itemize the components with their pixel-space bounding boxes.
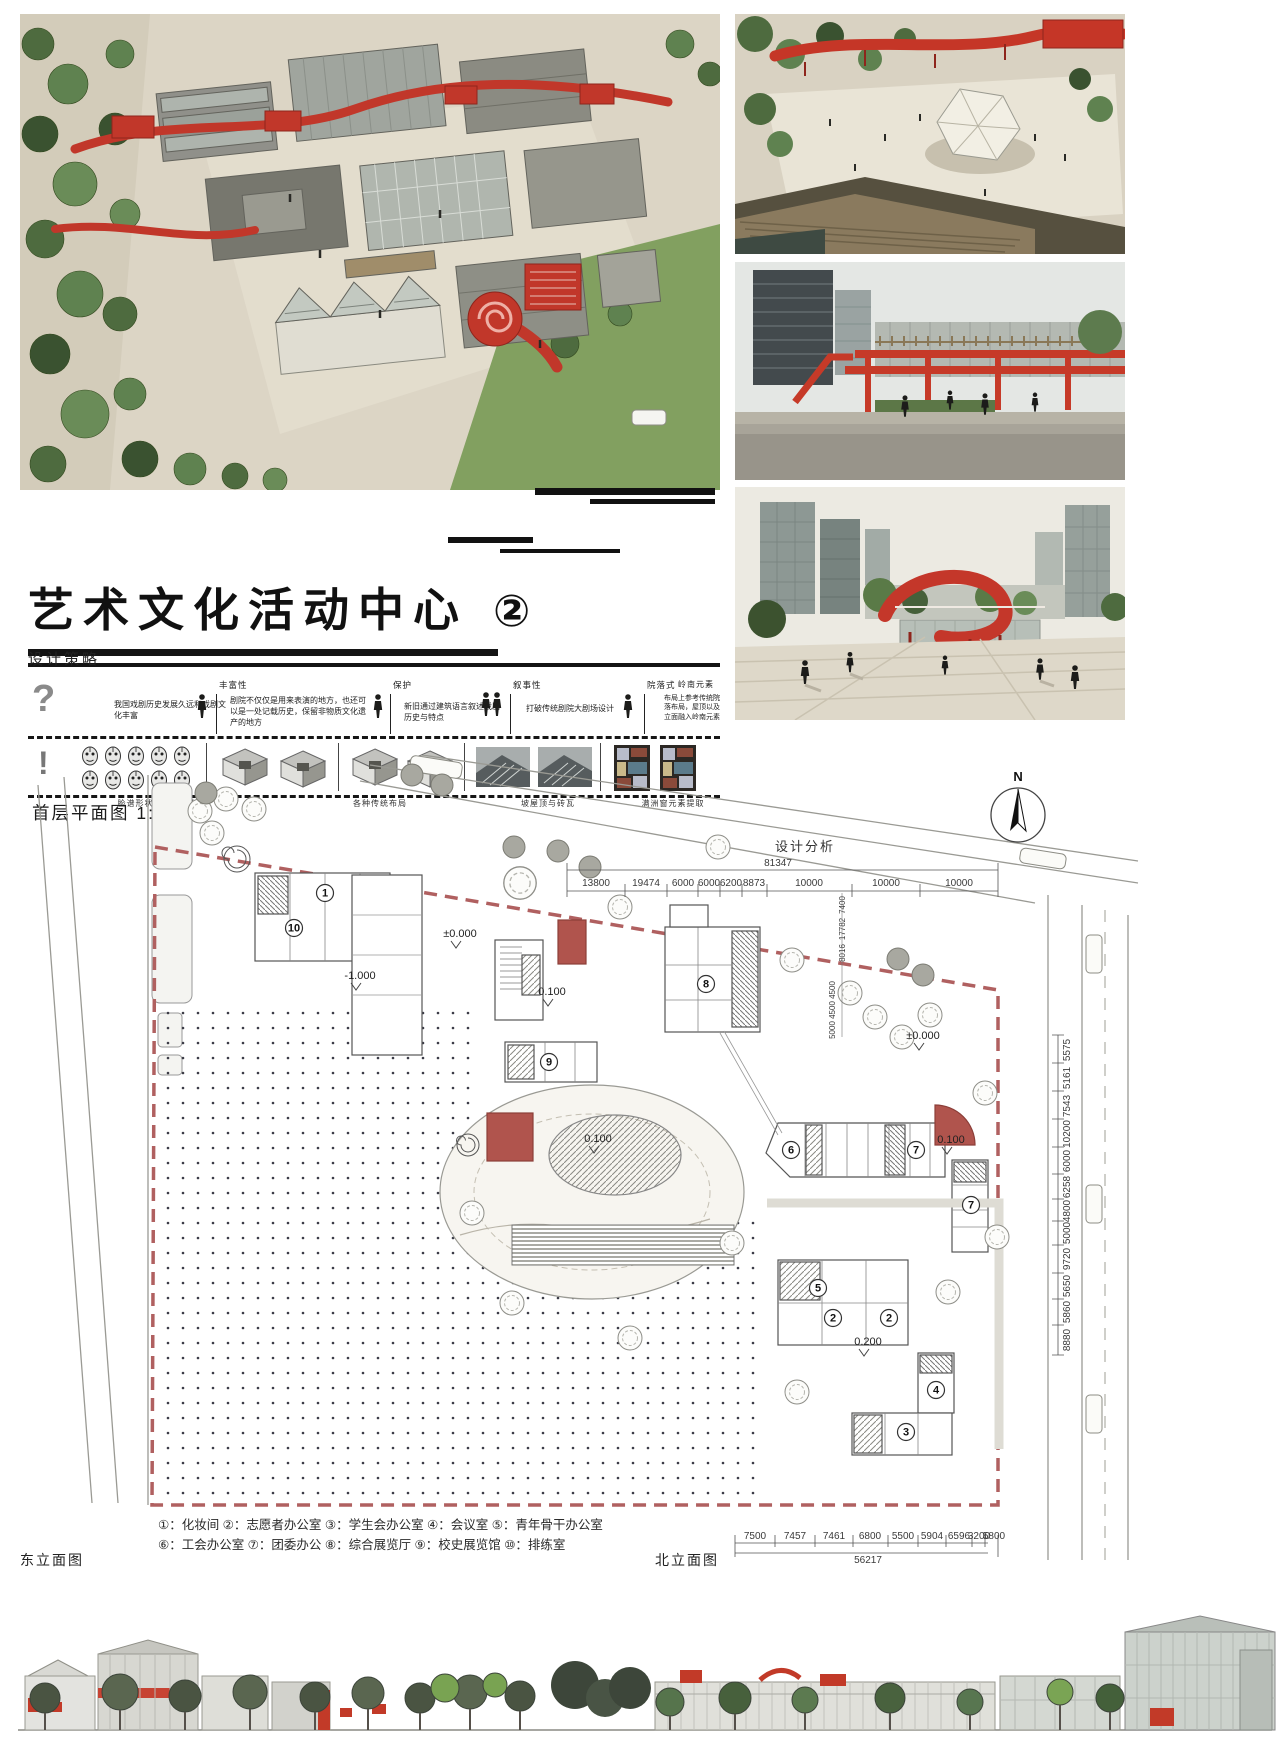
dim: 9720 bbox=[1062, 1247, 1073, 1270]
level-marker: ±0.000 bbox=[443, 928, 477, 940]
strategy-intro-text: 我国戏剧历史发展久远和戏剧文化丰富 bbox=[114, 700, 230, 722]
north-label: N bbox=[1013, 769, 1022, 784]
north-elevation-label: 北立面图 bbox=[655, 1550, 719, 1570]
tree bbox=[1078, 310, 1122, 354]
dim: 5650 bbox=[1062, 1274, 1073, 1297]
room-number: 4 bbox=[933, 1385, 940, 1397]
presentation-board: { "title": { "text": "艺术文化活动中心", "badge"… bbox=[0, 0, 1279, 1753]
left-road bbox=[38, 775, 148, 1505]
signature-line bbox=[590, 499, 715, 504]
plan-building-8 bbox=[665, 905, 760, 1032]
dim: 6000 bbox=[672, 878, 695, 889]
dim: 6800 bbox=[859, 1531, 882, 1542]
person-icon bbox=[622, 694, 634, 720]
strategy-label-protection: 保护 bbox=[393, 679, 412, 691]
room-number: 10 bbox=[288, 923, 300, 935]
dim: 13800 bbox=[582, 878, 610, 889]
divider bbox=[644, 694, 645, 734]
question-mark-icon: ? bbox=[32, 680, 55, 718]
top-dimension-chain: 81347 13800 19474 6000 6000 6200 8873 10… bbox=[567, 858, 998, 897]
room-number: 7 bbox=[913, 1145, 919, 1157]
level-marker: -1.000 bbox=[344, 970, 375, 982]
divider bbox=[390, 694, 391, 734]
white-car bbox=[632, 410, 666, 425]
signature-line bbox=[500, 549, 620, 553]
strategy-row-concepts: ? 我国戏剧历史发展久远和戏剧文化丰富 丰富性 剧院不仅仅是用来表演的地方，也还… bbox=[28, 678, 720, 739]
bottom-dimension-chain: 7500 7457 7461 6800 5500 5904 6596 3200 … bbox=[735, 1531, 1006, 1565]
page-title: 艺术文化活动中心 bbox=[28, 583, 468, 637]
terraced-base bbox=[735, 400, 1125, 480]
strategy-label-richness: 丰富性 bbox=[219, 679, 248, 691]
dim: 5000 bbox=[1062, 1221, 1073, 1244]
level-marker: 0.100 bbox=[584, 1133, 612, 1145]
north-arrow: N bbox=[991, 769, 1045, 842]
room-number: 5 bbox=[815, 1283, 821, 1295]
dim: 4500 bbox=[828, 1001, 837, 1019]
dim: 5860 bbox=[1062, 1300, 1073, 1323]
connector-walkway bbox=[720, 1031, 782, 1135]
dim: 6000 bbox=[1062, 1149, 1073, 1172]
dim: 4800 bbox=[1062, 1199, 1073, 1222]
dim: 6258 bbox=[1062, 1175, 1073, 1198]
strategy-label-lingnan: 岭南元素 bbox=[678, 679, 714, 690]
room-number: 9 bbox=[546, 1057, 552, 1069]
people-icon bbox=[480, 692, 504, 718]
dim: 6200 bbox=[720, 878, 743, 889]
dim: 5500 bbox=[892, 1531, 915, 1542]
level-marker: ±0.000 bbox=[906, 1030, 940, 1042]
rendering-plaza-aerial bbox=[735, 14, 1125, 254]
plan-building-5-2-2 bbox=[778, 1260, 908, 1345]
dim: 10000 bbox=[795, 878, 823, 889]
plan-stair-building bbox=[495, 940, 543, 1020]
strategy-label-courtyard: 院落式 bbox=[647, 679, 676, 691]
dim: 17782 bbox=[838, 917, 847, 940]
room-number: 2 bbox=[830, 1313, 836, 1325]
right-dimension-chain: 5575 5161 7543 10200 6000 6258 4800 5000… bbox=[1052, 1035, 1073, 1355]
dim: 7543 bbox=[1062, 1094, 1073, 1117]
room-number: 6 bbox=[788, 1145, 794, 1157]
dim: 10200 bbox=[1062, 1120, 1073, 1148]
divider bbox=[510, 694, 511, 734]
plan-legend-line2: ⑥：工会办公室 ⑦：团委办公 ⑧：综合展览厅 ⑨：校史展览馆 ⑩：排练室 bbox=[158, 1537, 565, 1552]
rendering-aerial-main bbox=[20, 14, 720, 490]
east-elevation-label: 东立面图 bbox=[20, 1550, 84, 1570]
right-road-cars bbox=[1086, 935, 1102, 1433]
dim: 6000 bbox=[698, 878, 721, 889]
dim: 5161 bbox=[1062, 1066, 1073, 1089]
person-icon bbox=[372, 694, 384, 720]
plan-legend-line1: ①：化妆间 ②：志愿者办公室 ③：学生会办公室 ④：会议室 ⑤：青年骨干办公室 bbox=[158, 1517, 603, 1532]
strategy-heading: 设计策略 bbox=[28, 648, 100, 669]
rendering-plaza-aerial-art bbox=[735, 14, 1125, 254]
red-stair-block bbox=[525, 264, 581, 310]
site-plan-drawing: 首层平面图 1:500 设计分析 bbox=[30, 755, 1140, 1565]
title-block: 艺术文化活动中心 ② bbox=[28, 574, 720, 667]
strategy-label-narrative: 叙事性 bbox=[513, 679, 542, 691]
red-pavilion-a bbox=[558, 920, 586, 964]
rendering-street-view-art bbox=[735, 262, 1125, 480]
dim: 7500 bbox=[744, 1531, 767, 1542]
dim: 5904 bbox=[921, 1531, 944, 1542]
plaza-ground bbox=[735, 637, 1125, 720]
room-number: 8 bbox=[703, 979, 709, 991]
rendering-ribbon-plaza-art bbox=[735, 487, 1125, 720]
dim: 8016 bbox=[838, 944, 847, 962]
divider bbox=[216, 694, 217, 734]
red-pavilion-b bbox=[487, 1113, 533, 1161]
rendering-ribbon-plaza bbox=[735, 487, 1125, 720]
analysis-label: 设计分析 bbox=[775, 839, 835, 854]
north-elevation bbox=[655, 1616, 1275, 1730]
inner-dimensions: 7400 17782 8016 4500 4500 5000 bbox=[828, 893, 847, 1039]
east-elevation bbox=[25, 1640, 535, 1730]
dim: 7400 bbox=[838, 896, 847, 914]
dim: 7461 bbox=[823, 1531, 846, 1542]
dim: 19474 bbox=[632, 878, 660, 889]
dim: 5575 bbox=[1062, 1038, 1073, 1061]
level-marker: 0.100 bbox=[538, 986, 566, 998]
strategy-text-courtyard: 布局上参考传统院落布局，屋顶以及立面融入岭南元素 bbox=[664, 694, 720, 722]
first-floor-plan: 首层平面图 1:500 设计分析 bbox=[30, 755, 1140, 1565]
dim-total-bottom: 56217 bbox=[854, 1555, 882, 1565]
room-number: 2 bbox=[886, 1313, 892, 1325]
title-underline-thin bbox=[28, 663, 720, 667]
center-tree-cluster bbox=[551, 1661, 651, 1717]
dim: 5000 bbox=[828, 1021, 837, 1039]
dim: 5800 bbox=[983, 1531, 1006, 1542]
level-marker: 0.200 bbox=[854, 1336, 882, 1348]
plan-building-tall bbox=[352, 875, 422, 1055]
rendering-aerial-main-art bbox=[20, 14, 720, 490]
dim: 4500 bbox=[828, 981, 837, 999]
title-number-badge: ② bbox=[493, 586, 530, 637]
room-number: 7 bbox=[968, 1200, 974, 1212]
strategy-text-narrative: 打破传统剧院大剧场设计 bbox=[526, 704, 622, 715]
strategy-text-richness: 剧院不仅仅是用来表演的地方，也还可以是一处记载历史，保留非物质文化遗产的地方 bbox=[230, 696, 366, 728]
room-number: 3 bbox=[903, 1427, 909, 1439]
level-marker: 0.100 bbox=[937, 1134, 965, 1146]
person-icon bbox=[196, 694, 208, 720]
elevations-drawing bbox=[0, 1580, 1279, 1753]
central-landscape bbox=[440, 1085, 744, 1299]
rendering-street-view bbox=[735, 262, 1125, 480]
elevations-strip bbox=[0, 1580, 1279, 1753]
room-number: 1 bbox=[322, 888, 328, 900]
right-road bbox=[1048, 895, 1128, 1560]
dim-total-top: 81347 bbox=[764, 858, 792, 869]
dim: 10000 bbox=[872, 878, 900, 889]
dim: 8873 bbox=[743, 878, 766, 889]
dim: 7457 bbox=[784, 1531, 807, 1542]
signature-line bbox=[535, 488, 715, 495]
dim: 10000 bbox=[945, 878, 973, 889]
dim: 8880 bbox=[1062, 1328, 1073, 1351]
signature-line bbox=[448, 537, 533, 543]
